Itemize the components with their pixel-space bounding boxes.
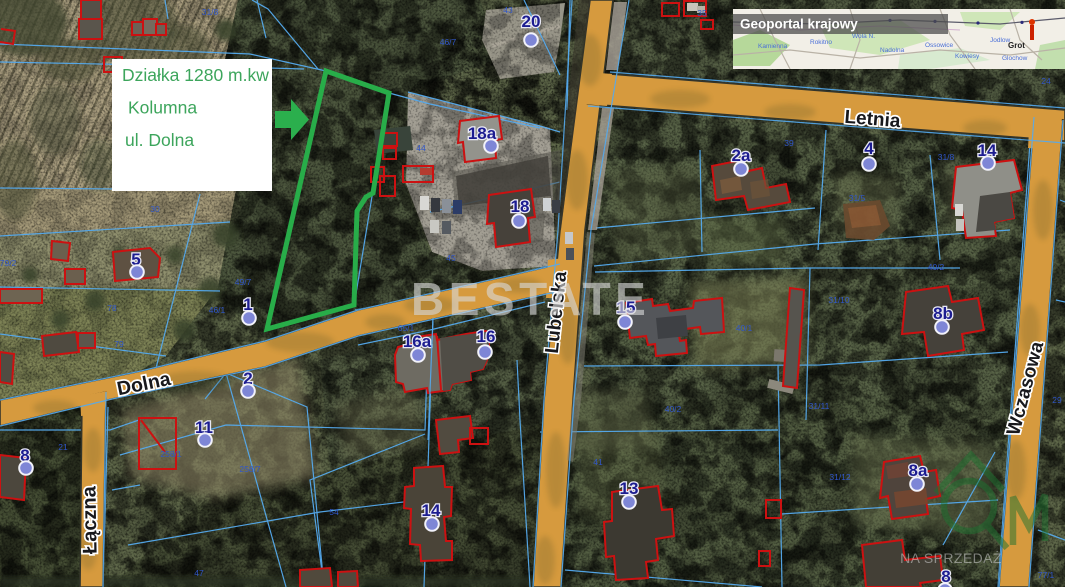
svg-text:47: 47: [194, 568, 204, 578]
svg-text:24: 24: [1041, 76, 1051, 86]
svg-text:31/5: 31/5: [849, 193, 866, 203]
svg-text:20: 20: [522, 12, 541, 31]
svg-text:Geoportal krajowy: Geoportal krajowy: [740, 17, 858, 32]
svg-text:77/1: 77/1: [1038, 570, 1055, 580]
svg-text:46/7: 46/7: [440, 37, 457, 47]
svg-text:45: 45: [446, 253, 456, 263]
svg-text:31/12: 31/12: [829, 472, 851, 482]
svg-text:46/1: 46/1: [209, 305, 226, 315]
svg-text:Kamienna: Kamienna: [758, 43, 788, 50]
svg-text:16: 16: [477, 327, 496, 346]
svg-text:49/7: 49/7: [235, 277, 252, 287]
svg-text:40/2: 40/2: [665, 404, 682, 414]
svg-text:31/8: 31/8: [938, 152, 955, 162]
svg-text:18: 18: [511, 197, 530, 216]
svg-text:31/10: 31/10: [828, 295, 850, 305]
svg-text:30: 30: [150, 204, 160, 214]
svg-text:39: 39: [784, 138, 794, 148]
svg-text:79/2: 79/2: [0, 258, 17, 268]
svg-text:29: 29: [1052, 395, 1062, 405]
svg-text:Kolumna: Kolumna: [128, 98, 197, 118]
svg-text:Ossowice: Ossowice: [925, 42, 954, 49]
svg-text:Rokitno: Rokitno: [810, 39, 832, 46]
svg-text:BESTATE: BESTATE: [411, 273, 650, 325]
svg-text:41: 41: [593, 457, 603, 467]
svg-text:35: 35: [697, 8, 707, 18]
svg-text:54: 54: [329, 507, 339, 517]
svg-text:Grot: Grot: [1008, 41, 1025, 50]
svg-text:258/1: 258/1: [160, 449, 182, 459]
svg-text:Letnia: Letnia: [844, 107, 902, 132]
svg-text:Łączna: Łączna: [78, 485, 101, 554]
svg-text:ul. Dolna: ul. Dolna: [125, 130, 194, 150]
svg-text:21: 21: [58, 442, 68, 452]
svg-text:Glochow: Glochow: [1002, 55, 1028, 62]
svg-text:258/7: 258/7: [239, 464, 261, 474]
svg-text:79: 79: [114, 339, 124, 349]
svg-text:43: 43: [503, 5, 513, 15]
svg-text:31/8: 31/8: [202, 7, 219, 17]
svg-text:Nadolna: Nadolna: [880, 47, 905, 54]
svg-text:Wola N.: Wola N.: [852, 33, 875, 40]
svg-text:40/1: 40/1: [736, 323, 753, 333]
svg-text:4: 4: [864, 139, 874, 158]
svg-text:44: 44: [416, 143, 426, 153]
svg-text:Działka 1280 m.kw: Działka 1280 m.kw: [122, 65, 269, 85]
svg-text:78: 78: [107, 303, 117, 313]
svg-text:Kowiesy: Kowiesy: [955, 53, 980, 60]
svg-text:40/2: 40/2: [928, 262, 945, 272]
svg-text:31/11: 31/11: [809, 401, 830, 411]
svg-text:NA SPRZEDAŻ: NA SPRZEDAŻ: [900, 549, 1002, 566]
